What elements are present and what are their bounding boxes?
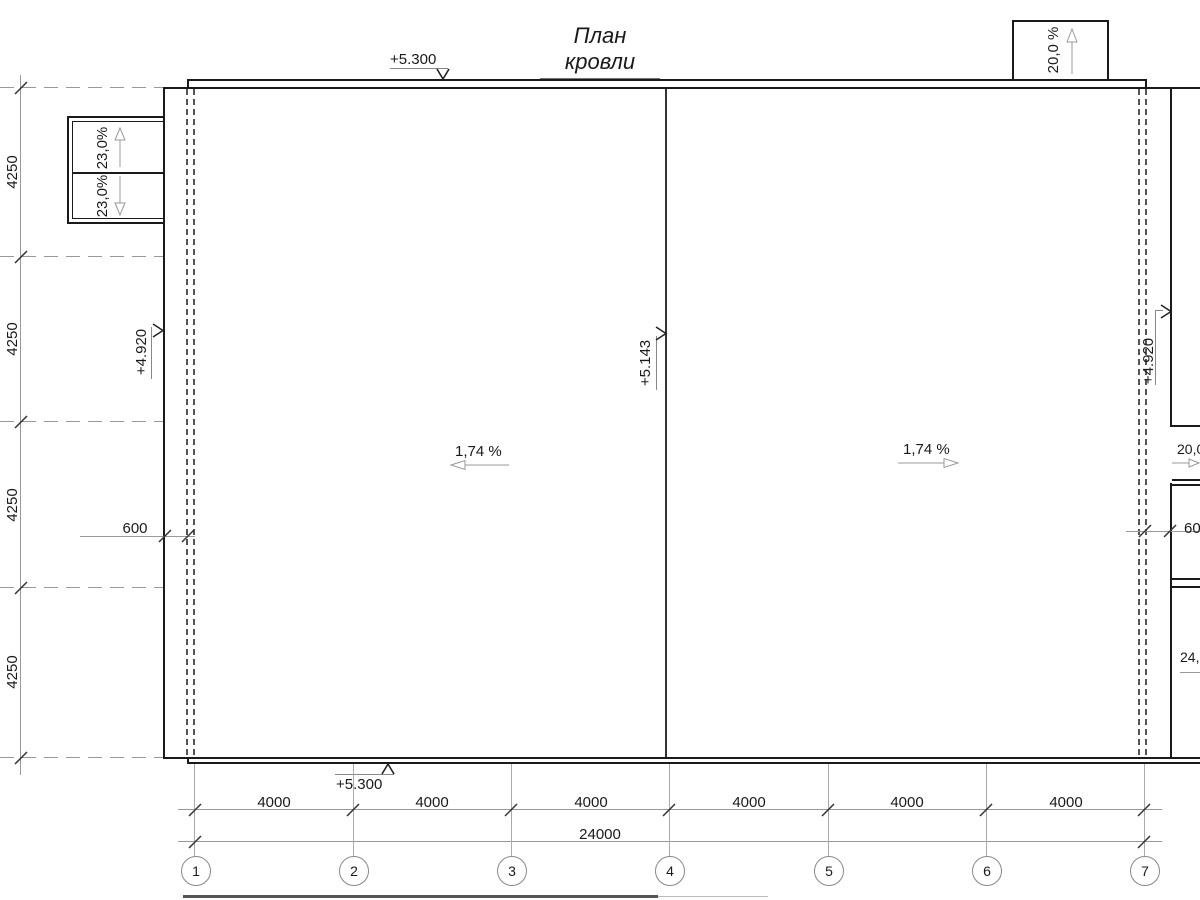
canopy-slope-label: 20,0 % [1045,20,1061,80]
dimension-tick [345,802,361,818]
grid-bubble-3: 3 [497,856,527,886]
slope-arrow-line [1180,672,1200,673]
roof-overhang-bottom [187,762,1200,764]
dimension-label: 4000 [1036,794,1096,811]
slope-arrow-right-icon [1172,456,1200,470]
elevation-mark: +5.143 [637,333,653,393]
dimension-line [178,841,1162,842]
elevation-arrow-up-icon [380,762,396,775]
dimension-tick [13,414,29,430]
right-canopy1-edge [1172,425,1200,427]
dimension-tick [157,528,173,544]
wall-below-dashed-line [193,89,195,757]
elevation-arrow-right-icon [1160,304,1172,319]
dimension-tick [661,802,677,818]
roof-edge-right-upper [1170,87,1172,427]
dimension-label: 4000 [561,794,621,811]
elevation-arrow-down-icon [435,68,451,81]
dimension-tick [13,580,29,596]
dimension-tick [13,750,29,766]
dimension-label: 4000 [402,794,462,811]
dimension-label: 4250 [4,142,20,202]
dimension-tick [978,802,994,818]
roof-edge-bottom [163,757,1200,759]
dimension-label: 4250 [4,642,20,702]
roof-edge-top [163,87,1200,89]
grid-bubble-1: 1 [181,856,211,886]
elevation-leader [656,336,657,390]
canopy-slope-label: 20,0 % [1177,441,1200,457]
elevation-mark: +5.300 [390,51,436,68]
slope-arrow-right-icon [896,456,960,470]
roof-overhang-corner [187,79,189,89]
roof-overhang-corner [1145,79,1147,89]
dimension-tick [187,834,203,850]
dimension-label: 600 [120,520,150,537]
elevation-arrow-right-icon [655,326,667,341]
wall-below-dashed-line [1138,89,1140,757]
sheet-cut-line [183,895,658,898]
elevation-arrow-right-icon [152,323,164,338]
roof-overhang-corner [187,757,189,764]
slope-arrow-up-icon [112,125,128,169]
dimension-label: 4000 [877,794,937,811]
dimension-tick [1136,834,1152,850]
elevation-mark: +5.300 [336,776,382,793]
slope-arrow-down-icon [112,174,128,218]
ridge-line [665,89,667,757]
drawing-title: План кровли [540,23,660,79]
sheet-cut-line [658,896,768,897]
canopy-slope-label: 24,0 % [1180,649,1200,665]
canopy-slope-label: 23,0% [94,166,110,226]
right-canopy1-edge [1172,479,1200,481]
dimension-label: 4000 [244,794,304,811]
dimension-tick [503,802,519,818]
roof-plan-drawing: План кровли 23,0% 23,0% 20,0 % 20,0 % [0,0,1200,900]
dimension-label: 600 [1184,520,1200,537]
dimension-tick [1136,802,1152,818]
elevation-mark: +4.920 [1140,331,1156,391]
grid-bubble-2: 2 [339,856,369,886]
roof-edge-left [163,87,165,759]
slope-arrow-left-icon [449,458,511,472]
wall-below-dashed-line [186,89,188,757]
elevation-leader [1155,310,1156,385]
dimension-tick [820,802,836,818]
roof-overhang-top [187,79,1147,81]
dimension-tick [1137,523,1153,539]
grid-bubble-7: 7 [1130,856,1160,886]
slope-arrow-up-icon [1064,26,1080,76]
grid-bubble-5: 5 [814,856,844,886]
dimension-tick [187,802,203,818]
dimension-label: 4000 [719,794,779,811]
dimension-label: 24000 [570,826,630,843]
wall-below-dashed-line [1145,89,1147,757]
right-canopy2-edge [1172,586,1200,588]
elevation-mark: +4.920 [133,322,149,382]
dimension-label: 4250 [4,309,20,369]
right-canopy1-edge [1172,484,1200,486]
grid-bubble-6: 6 [972,856,1002,886]
dimension-label: 4250 [4,475,20,535]
dimension-tick [13,249,29,265]
dimension-tick [13,80,29,96]
dimension-tick [1162,523,1178,539]
dimension-tick [180,528,196,544]
right-canopy2-edge [1172,578,1200,580]
grid-bubble-4: 4 [655,856,685,886]
